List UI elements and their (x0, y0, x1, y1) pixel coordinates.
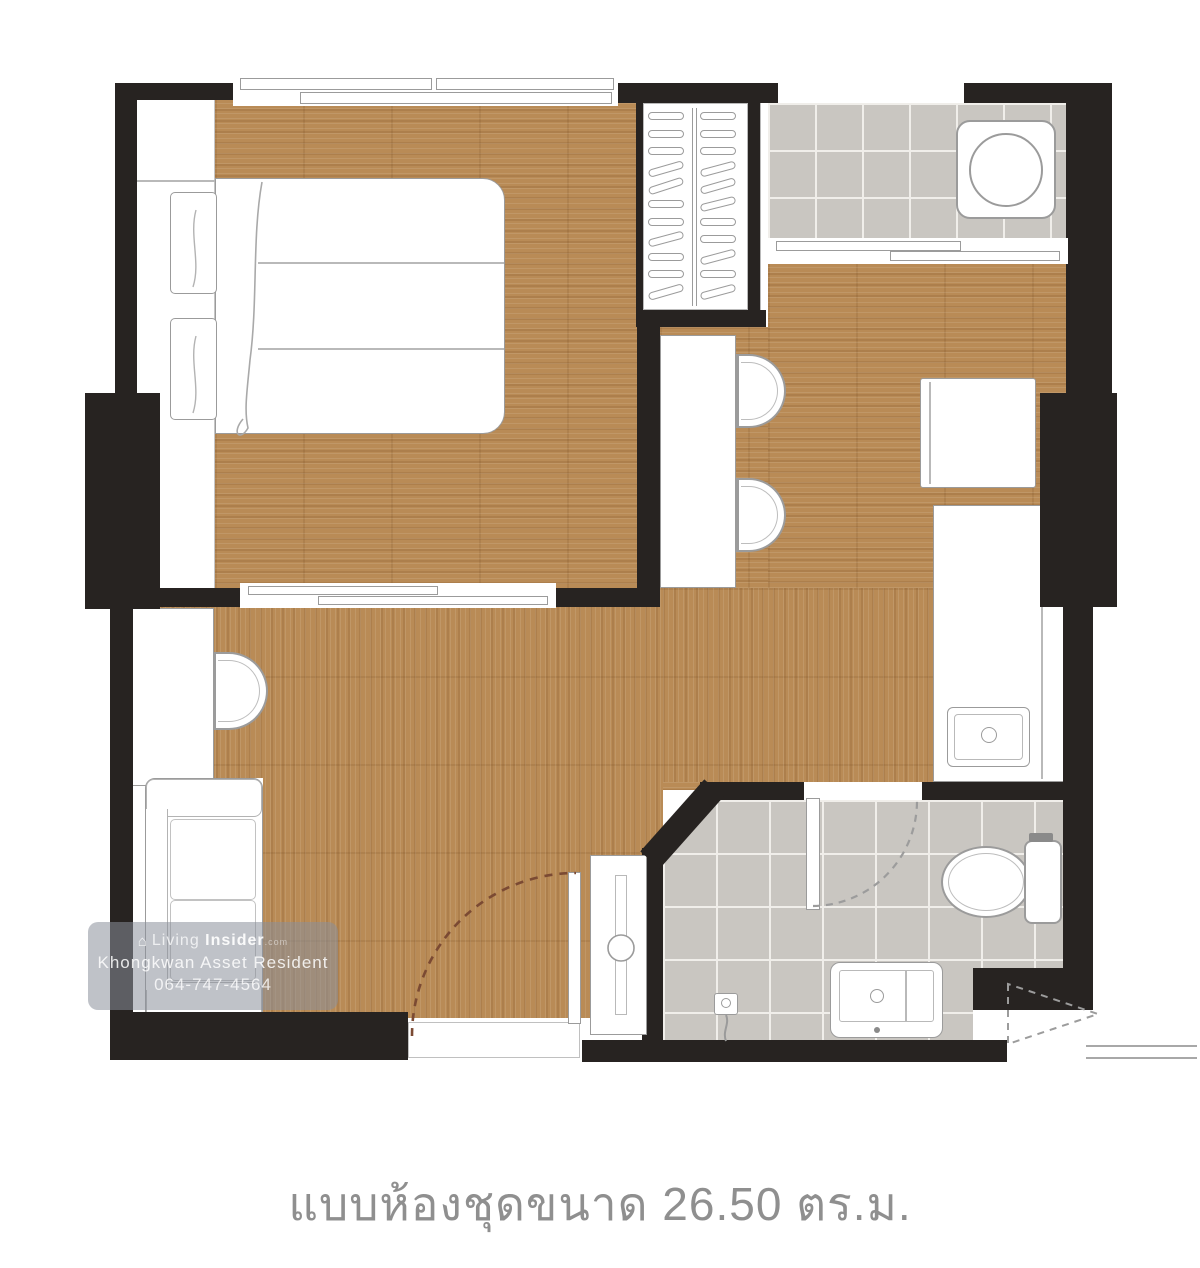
wall-right-lower (1063, 607, 1093, 1010)
wall-bathroom-north-right (922, 782, 1067, 800)
refrigerator-icon (920, 378, 1036, 488)
clothes-hanger-icon (700, 283, 737, 300)
pillow-icon (170, 192, 217, 294)
wardrobe-frame-left (636, 103, 643, 310)
bedroom-window-rail (436, 78, 614, 90)
clothes-hanger-icon (700, 130, 736, 138)
vanity-divider-line (905, 970, 907, 1022)
clothes-hanger-icon (700, 147, 736, 155)
wall-bathroom-north-left (700, 782, 804, 800)
clothes-hanger-icon (700, 160, 737, 177)
plan-caption: แบบห้องชุดขนาด 26.50 ตร.ม. (0, 1168, 1200, 1241)
bedroom-window-rail (240, 78, 432, 90)
clothes-hanger-icon (700, 270, 736, 278)
refrigerator-door-line (929, 382, 931, 484)
floor-plan-image: ⌂Living Insider.com Khongkwan Asset Resi… (0, 0, 1200, 1268)
watermark-brand: ⌂Living Insider.com (88, 932, 338, 950)
balcony-sliding-door-rail (776, 241, 961, 251)
console-desk (130, 608, 214, 786)
wall-left-column (85, 393, 160, 609)
watermark-badge: ⌂Living Insider.com Khongkwan Asset Resi… (88, 922, 338, 1010)
clothes-hanger-icon (648, 130, 684, 138)
wall-bottom-left (110, 1012, 408, 1060)
sofa-cushion (170, 819, 256, 900)
shower-mixer-knob (721, 998, 731, 1008)
watermark-brand-tld: .com (265, 937, 289, 947)
clothes-hanger-icon (700, 196, 737, 212)
watermark-brand-prefix: Living (152, 932, 200, 949)
house-icon: ⌂ (138, 933, 148, 950)
clothes-hanger-icon (648, 231, 685, 248)
entrance-door-post (568, 872, 581, 1024)
watermark-brand-suffix: Insider (205, 932, 264, 949)
wall-partition-right (556, 588, 660, 607)
clothes-hanger-icon (700, 178, 737, 196)
toilet-tank (1024, 840, 1062, 924)
bedroom-window-rail (300, 92, 612, 104)
wall-bottom-bathroom (582, 1040, 1007, 1062)
bed-crease-line (258, 262, 504, 264)
clothes-hanger-icon (648, 112, 684, 120)
sink-drain-icon (981, 727, 997, 743)
wall-bedroom-east (637, 310, 660, 590)
clothes-hanger-icon (648, 218, 684, 226)
balcony-window-opening (778, 80, 964, 103)
clothes-hanger-icon (648, 200, 684, 208)
headboard-divider-line (135, 180, 215, 182)
wall-left-upper (115, 83, 137, 393)
wall-step-block (973, 968, 1093, 1010)
double-bed-mattress (215, 178, 505, 434)
partition-sliding-rail (248, 586, 438, 595)
watermark-agent-name: Khongkwan Asset Resident (88, 953, 338, 973)
balcony-sliding-door-rail (890, 251, 1060, 261)
clothes-hanger-icon (648, 147, 684, 155)
clothes-hanger-icon (648, 270, 684, 278)
clothes-hanger-icon (648, 283, 685, 301)
bathroom-door-threshold (804, 782, 922, 800)
wardrobe-side-panel (760, 103, 768, 310)
wall-partition-left (110, 588, 240, 607)
vanity-basin-inner (839, 970, 934, 1022)
washing-machine-drum (969, 133, 1043, 207)
toilet-seat-line (948, 853, 1024, 911)
entrance-door-panel-line (615, 875, 627, 1015)
wardrobe-hangers (646, 112, 746, 308)
corridor-floor (663, 588, 933, 782)
partition-sliding-rail (318, 596, 548, 605)
wall-right-upper (1066, 83, 1112, 393)
clothes-hanger-icon (700, 248, 737, 265)
watermark-phone: 064-747-4564 (88, 975, 338, 995)
breakfast-bar-counter (660, 335, 736, 588)
clothes-hanger-icon (648, 160, 685, 178)
pillow-icon (170, 318, 217, 420)
bed-crease-line (258, 348, 504, 350)
entrance-threshold (408, 1022, 580, 1058)
clothes-hanger-icon (648, 253, 684, 261)
clothes-hanger-icon (648, 177, 685, 196)
toilet-flush-handle (1029, 833, 1053, 842)
bathroom-door-leaf (806, 798, 820, 910)
clothes-hanger-icon (700, 112, 736, 120)
wall-right-column (1040, 393, 1117, 607)
vanity-drain-dot (874, 1027, 880, 1033)
clothes-hanger-icon (700, 235, 736, 243)
vanity-faucet-icon (870, 989, 884, 1003)
wardrobe-frame-right (748, 103, 760, 310)
clothes-hanger-icon (700, 218, 736, 226)
